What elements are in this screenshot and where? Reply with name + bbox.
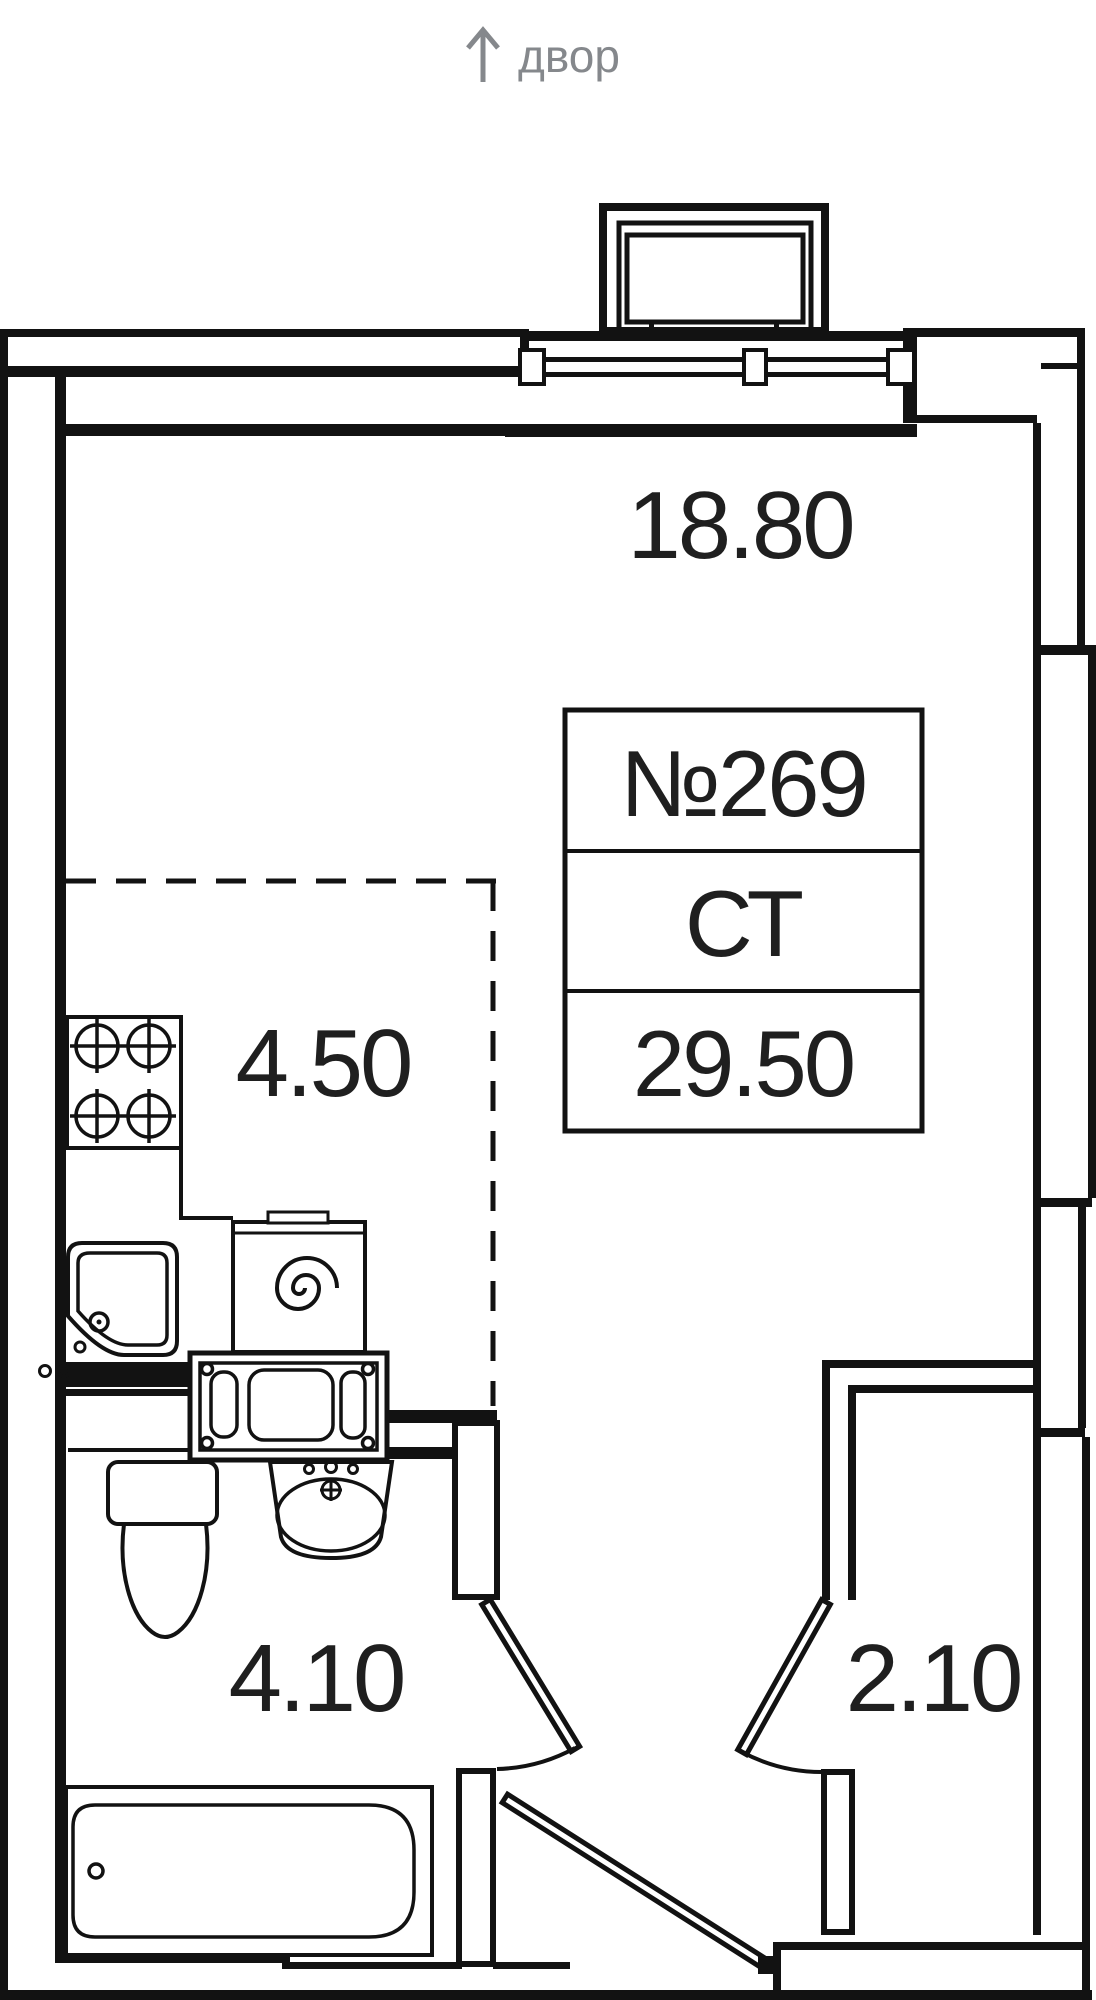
unit-type: СТ <box>685 871 803 976</box>
wall-right-inner <box>1033 423 1041 1935</box>
window-glazing-1 <box>532 357 892 362</box>
window-glazing-2 <box>532 372 892 377</box>
wall-bottom-threshold <box>493 1962 570 1969</box>
kitchen-sink-icon <box>68 1243 177 1355</box>
wall-bottom-right-end <box>1082 1942 1090 1990</box>
wash-basin-icon <box>270 1462 392 1559</box>
balcony-rail-outer <box>603 207 825 331</box>
window-mullion <box>744 350 766 384</box>
wall-left-outer <box>0 337 8 1997</box>
wall-top-inner <box>0 366 521 377</box>
wall-beam <box>60 424 520 436</box>
wall-right-outer-a <box>1077 337 1085 647</box>
wall-left-inner <box>55 377 66 1955</box>
wall-bars <box>455 1423 852 1964</box>
wall-hall-left-outer <box>822 1360 830 1600</box>
wall-bath-jamb <box>385 1447 462 1459</box>
balcony-tick-left <box>649 322 654 332</box>
wall-bath-right-upper <box>455 1423 497 1597</box>
wall-bottom-step <box>282 1955 290 1969</box>
wall-right-outer-d <box>1082 1437 1090 1942</box>
doors <box>482 1599 831 1974</box>
wall-bottom-right-top <box>773 1942 1090 1950</box>
bathtub-icon <box>66 1787 432 1955</box>
window-frame-right <box>888 350 914 384</box>
bathroom-door <box>482 1599 580 1769</box>
wall-right-joint-a <box>1041 645 1096 655</box>
window-frame-left <box>520 350 544 384</box>
compass: двор <box>468 30 620 82</box>
entry-door-hinge <box>758 1956 776 1974</box>
wall-bath-right-lower <box>459 1771 493 1964</box>
toilet-icon <box>108 1462 217 1637</box>
window-band-bottom <box>505 424 917 437</box>
unit-total-area: 29.50 <box>633 1011 853 1116</box>
wall-right-joint-c <box>1041 1428 1085 1437</box>
balcony-tick-right <box>774 322 779 332</box>
wall-bottom-edge-l2 <box>290 1962 462 1969</box>
kitchen-area-label: 4.50 <box>236 1010 411 1117</box>
up-arrow-icon <box>468 30 498 82</box>
floor-plan-page: двор <box>0 0 1096 2000</box>
stove-icon <box>67 1017 181 1148</box>
wall-bottom-outer <box>0 1990 1092 2000</box>
living-room-area-label: 18.80 <box>627 472 852 579</box>
bathroom-area-label: 4.10 <box>229 1625 404 1732</box>
compass-label: двор <box>518 30 620 82</box>
fixtures <box>40 1017 433 1955</box>
wall-hall-left-lower <box>824 1772 852 1932</box>
walls <box>0 328 1096 2000</box>
wall-hall-top-inner <box>848 1385 1037 1393</box>
wall-kitchen-bath-b <box>66 1389 190 1396</box>
floor-plan: двор <box>0 0 1096 2000</box>
unit-number: №269 <box>620 731 866 836</box>
window-unit <box>520 207 914 384</box>
closet-door <box>738 1600 831 1772</box>
wall-right-outer-b <box>1088 655 1096 1198</box>
wall-topright-outer <box>903 328 1085 337</box>
wall-right-joint-b <box>1035 1198 1092 1207</box>
entry-door <box>502 1794 776 1974</box>
wall-kitchen-bath-a <box>66 1362 190 1387</box>
counter-edge <box>181 1148 233 1218</box>
washing-machine-icon <box>233 1212 365 1352</box>
wall-hall-left-inner <box>848 1385 856 1600</box>
unit-card: №269 СТ 29.50 <box>565 710 922 1131</box>
wall-bath-shelf <box>68 1448 190 1452</box>
hallway-area-label: 2.10 <box>846 1625 1021 1732</box>
balcony-rail-inner <box>627 235 803 322</box>
wall-right-tick <box>1041 363 1077 369</box>
cistern-unit-icon <box>190 1353 387 1460</box>
balcony-rail-mid <box>619 223 811 331</box>
wall-right-outer-c <box>1078 1207 1086 1428</box>
wall-hall-top-outer <box>822 1360 1037 1368</box>
wall-top-outer <box>0 329 528 337</box>
wall-topright-face <box>917 415 1037 423</box>
